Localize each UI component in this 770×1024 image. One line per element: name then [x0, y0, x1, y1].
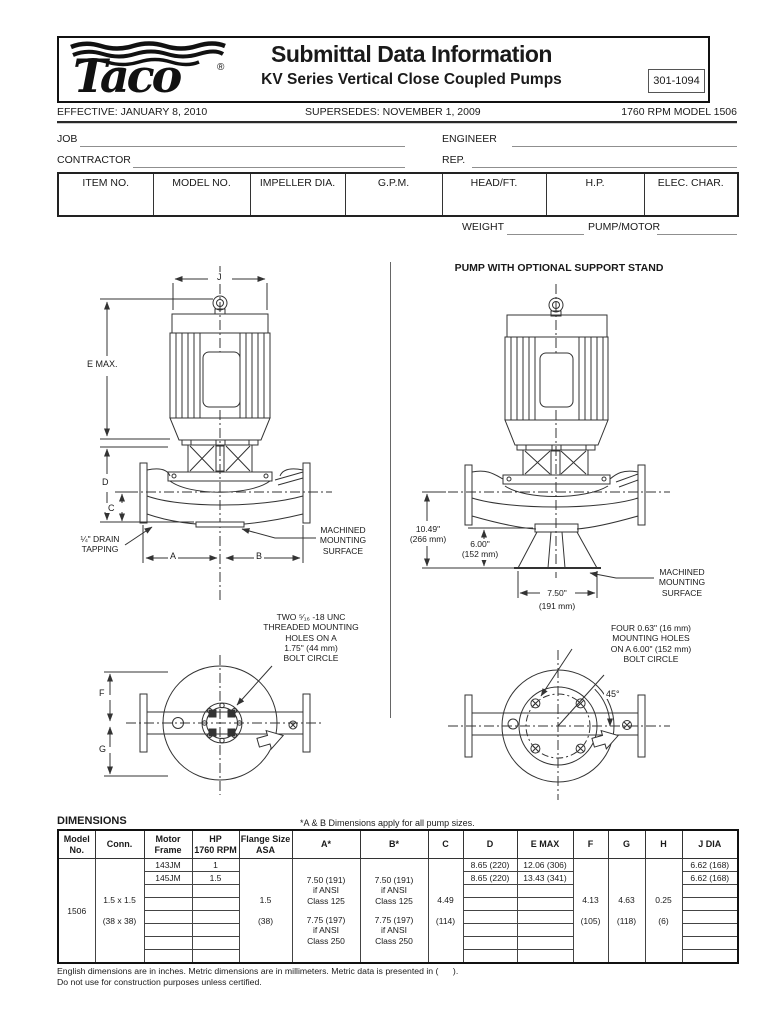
rep-field[interactable] [472, 157, 737, 168]
dim-g-label: G [97, 744, 108, 754]
model-no-cell: 1506 [58, 859, 95, 964]
pump-motor-field[interactable] [657, 224, 737, 235]
col-a: A* [292, 830, 360, 859]
spec-table: ITEM NO. MODEL NO. IMPELLER DIA. G.P.M. … [57, 172, 739, 217]
dimensions-title: DIMENSIONS [57, 815, 127, 827]
dim-c-label: C [106, 503, 117, 513]
machined-mounting-surface-note: MACHINED MOUNTING SURFACE [314, 525, 372, 556]
dim-j-label: J [215, 272, 224, 282]
engineer-label: ENGINEER [442, 133, 497, 145]
drain-leader [125, 527, 152, 545]
col-h: H [645, 830, 682, 859]
footer-note-1: English dimensions are in inches. Metric… [57, 966, 458, 976]
job-field[interactable] [80, 136, 405, 147]
effective-date: EFFECTIVE: JANUARY 8, 2010 [57, 106, 207, 118]
model-rpm: 1760 RPM MODEL 1506 [537, 106, 737, 118]
spec-header-elec-char: ELEC. CHAR. [644, 173, 738, 216]
header-rule [57, 121, 737, 124]
col-e-max: E MAX [517, 830, 573, 859]
dim-a-label: A [168, 551, 178, 561]
conn-cell: 1.5 x 1.5 (38 x 38) [95, 859, 144, 964]
volute-casing [128, 463, 332, 527]
flange-cell: 1.5 (38) [239, 859, 292, 964]
page-title: Submittal Data Information [179, 41, 644, 68]
pump-motor-label: PUMP/MOTOR [588, 221, 660, 233]
mount-leader [590, 573, 654, 578]
spec-header-gpm: G.P.M. [345, 173, 442, 216]
weight-label: WEIGHT [462, 221, 504, 233]
footer-note-2: Do not use for construction purposes unl… [57, 977, 262, 987]
drain-tapping-note: ¼" DRAIN TAPPING [72, 534, 128, 555]
stand-view-title: PUMP WITH OPTIONAL SUPPORT STAND [409, 262, 709, 274]
engineer-field[interactable] [512, 136, 737, 147]
col-model-no: Model No. [58, 830, 95, 859]
g-cell: 4.63 (118) [608, 859, 645, 964]
doc-number: 301-1094 [648, 69, 705, 93]
col-d: D [463, 830, 517, 859]
flow-arrow [256, 726, 286, 751]
dim-b-label: B [254, 551, 264, 561]
flow-arrow [591, 726, 621, 751]
mount-leader [242, 529, 316, 538]
spec-header-model-no: MODEL NO. [153, 173, 250, 216]
dimensions-note: *A & B Dimensions apply for all pump siz… [300, 818, 475, 828]
a-cell: 7.50 (191) if ANSI Class 125 7.75 (197) … [292, 859, 360, 964]
col-b: B* [360, 830, 428, 859]
spec-header-hp: H.P. [546, 173, 644, 216]
dim-a-b-lines [143, 525, 303, 563]
col-hp: HP 1760 RPM [192, 830, 239, 859]
dim-f-label: F [97, 688, 107, 698]
h-cell: 0.25 (6) [645, 859, 682, 964]
contractor-label: CONTRACTOR [57, 154, 131, 166]
dim-750-label: 7.50" (191 mm) [533, 588, 581, 612]
rep-label: REP. [442, 154, 465, 166]
angle-45-label: 45° [604, 689, 622, 699]
volute-casing [448, 465, 670, 529]
mounting-holes-note: FOUR 0.63" (16 mm) MOUNTING HOLES ON A 6… [596, 623, 706, 664]
support-stand [514, 524, 601, 568]
supersedes-date: SUPERSEDES: NOVEMBER 1, 2009 [305, 106, 481, 118]
dim-f-g-lines [104, 672, 168, 776]
note-leader [541, 649, 572, 696]
col-conn: Conn. [95, 830, 144, 859]
brand-text: Taco [73, 49, 182, 99]
col-flange-size: Flange Size ASA [239, 830, 292, 859]
dim-1049-label: 10.49" (266 mm) [404, 524, 452, 545]
stand-top-view-drawing [420, 618, 760, 803]
table-row: 1506 1.5 x 1.5 (38 x 38) 143JM 1 1.5 (38… [58, 859, 738, 872]
threaded-holes-note: TWO ⁵⁄₁₆ -18 UNC THREADED MOUNTING HOLES… [254, 612, 368, 664]
dimensions-table: Model No. Conn. Motor Frame HP 1760 RPM … [57, 829, 739, 964]
col-g: G [608, 830, 645, 859]
dim-600-label: 6.00" (152 mm) [457, 539, 503, 560]
note-leader [237, 666, 272, 705]
col-motor-frame: Motor Frame [144, 830, 192, 859]
col-j-dia: J DIA [682, 830, 738, 859]
dim-d-label: D [100, 477, 111, 487]
c-cell: 4.49 (114) [428, 859, 463, 964]
col-f: F [573, 830, 608, 859]
dimensions-header-row: Model No. Conn. Motor Frame HP 1760 RPM … [58, 830, 738, 859]
col-c: C [428, 830, 463, 859]
dim-e-max-label: E MAX. [85, 359, 120, 369]
machined-mounting-surface-note-2: MACHINED MOUNTING SURFACE [652, 567, 712, 598]
section-divider [390, 262, 391, 718]
motor [170, 296, 270, 440]
weight-field[interactable] [507, 224, 584, 235]
job-label: JOB [57, 133, 77, 145]
spec-header-item-no: ITEM NO. [58, 173, 153, 216]
f-cell: 4.13 (105) [573, 859, 608, 964]
spec-header-impeller-dia: IMPELLER DIA. [250, 173, 345, 216]
page-subtitle: KV Series Vertical Close Coupled Pumps [179, 71, 644, 89]
contractor-field[interactable] [133, 157, 405, 168]
b-cell: 7.50 (191) if ANSI Class 125 7.75 (197) … [360, 859, 428, 964]
header-box: Taco ® Submittal Data Information KV Ser… [57, 36, 710, 103]
spec-header-head-ft: HEAD/FT. [442, 173, 546, 216]
submittal-data-sheet: Taco ® Submittal Data Information KV Ser… [0, 0, 770, 1024]
